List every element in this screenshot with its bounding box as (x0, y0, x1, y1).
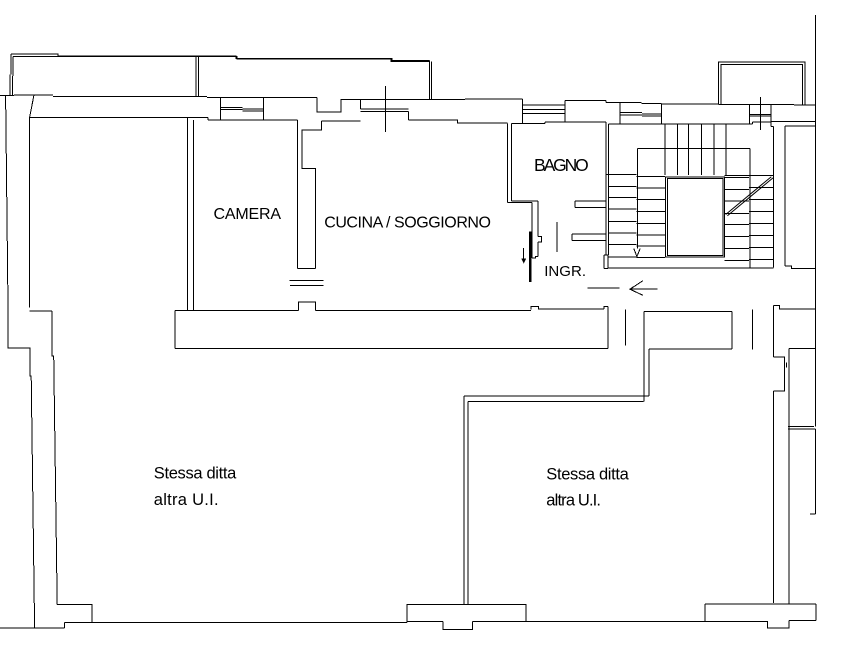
svg-text:CAMERA: CAMERA (214, 206, 282, 223)
svg-text:altra U.I.: altra U.I. (546, 492, 601, 510)
svg-text:Stessa ditta: Stessa ditta (154, 465, 237, 483)
svg-text:Stessa ditta: Stessa ditta (546, 466, 629, 484)
svg-text:INGR.: INGR. (544, 263, 586, 280)
svg-text:altra U.I.: altra U.I. (154, 491, 219, 509)
svg-text:BAGNO: BAGNO (534, 155, 589, 175)
svg-text:CUCINA / SOGGIORNO: CUCINA / SOGGIORNO (324, 214, 491, 231)
